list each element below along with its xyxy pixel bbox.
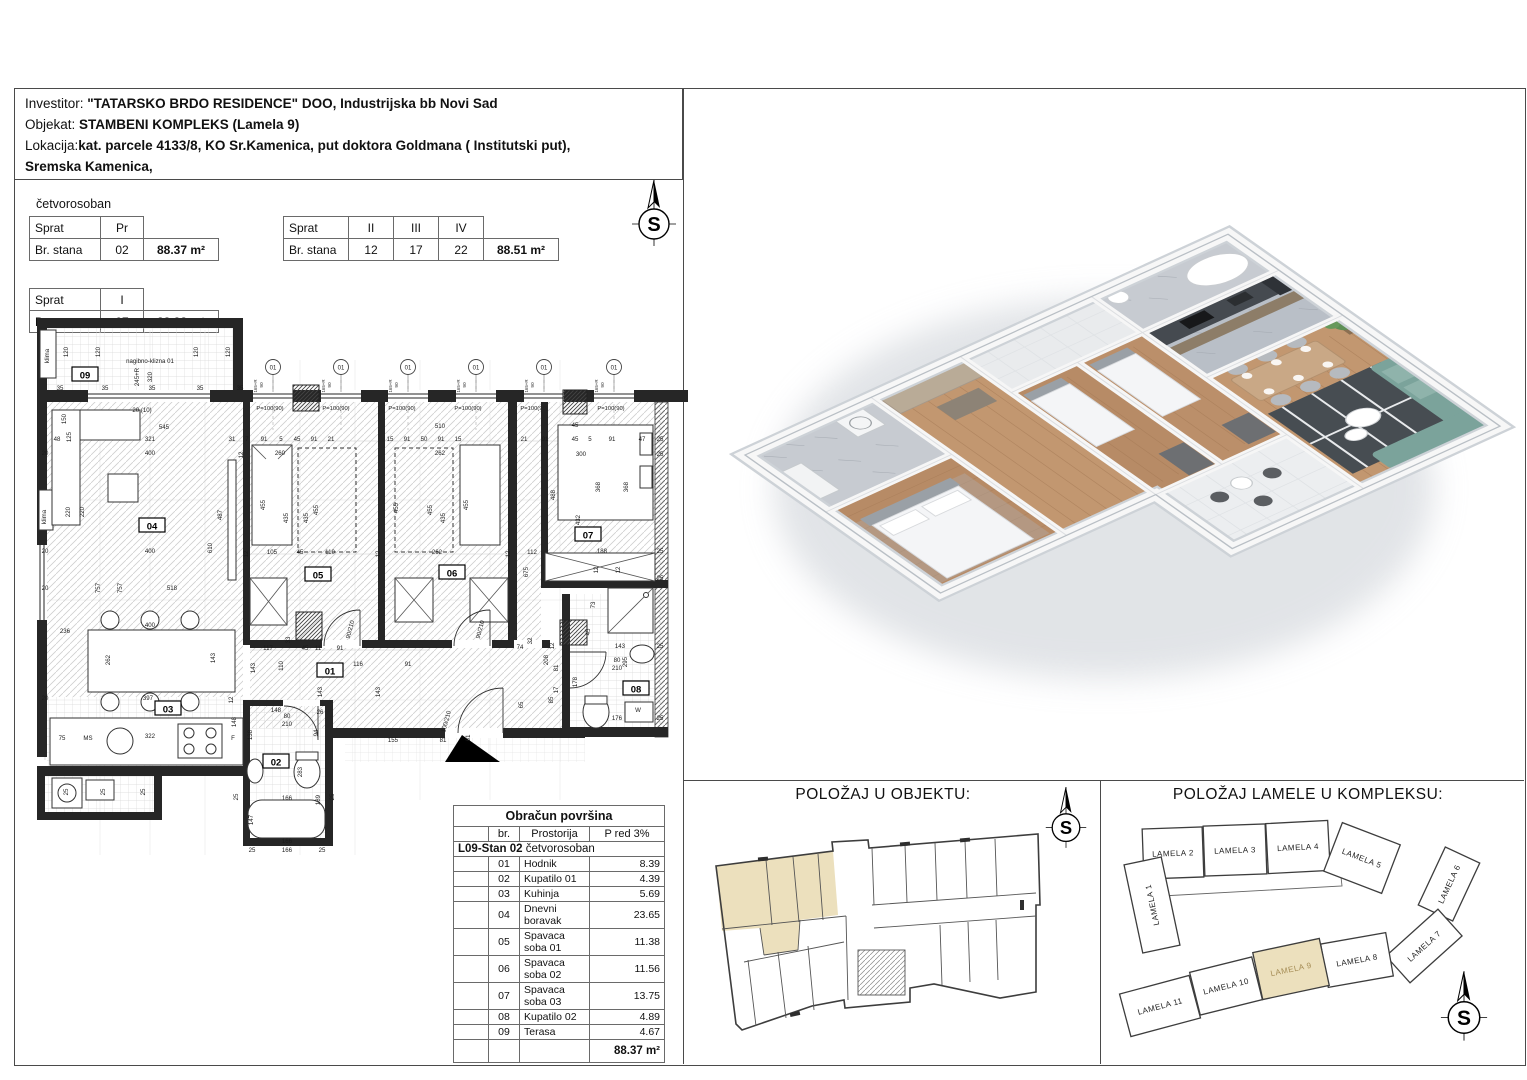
dim-label: 488 — [550, 489, 557, 500]
dim-label: 73 — [590, 601, 597, 608]
floor-plan-drawing: 0190165+R0190165+R0190165+R0190165+R0190… — [14, 300, 704, 875]
dim-label: 155 — [388, 737, 399, 744]
axis-marker-label: 01 — [270, 366, 277, 372]
unit-type-label: četvorosoban — [36, 197, 111, 211]
dim-label: 368 — [623, 481, 630, 492]
dim-label: 48 — [54, 436, 61, 443]
dim-label: 675 — [523, 566, 530, 577]
dim-label: 400 — [145, 622, 156, 629]
dim-label: F — [231, 735, 235, 742]
dim-label: 32 — [527, 637, 534, 644]
room-badge-label: 03 — [163, 705, 174, 716]
dim-label: 120 — [193, 346, 200, 357]
dim-label: 25 — [100, 788, 107, 795]
axis-sub-label: 165+R — [253, 379, 258, 392]
dim-label: 125 — [66, 431, 73, 442]
axis-sub-label: 165+R — [456, 379, 461, 392]
dim-label: 455 — [427, 504, 434, 515]
room-badge-label: 02 — [271, 758, 282, 769]
dim-label: 26 — [317, 709, 324, 716]
dim-label: 148 — [231, 716, 238, 727]
dim-label: 80 — [284, 713, 291, 720]
dim-label: 166 — [282, 838, 293, 845]
axis-sub-label: 90 — [327, 382, 333, 388]
dim-label: 455 — [393, 502, 400, 513]
lamela-block: LAMELA 5 — [1324, 823, 1401, 894]
parapet-label: P=100(90) — [388, 406, 415, 412]
dim-label: 178 — [572, 676, 579, 687]
dim-label: 120 — [225, 346, 232, 357]
dim-label: 21 — [328, 436, 335, 443]
dim-label: 150 — [61, 413, 68, 424]
dim-label: nagibno-klizna 01 — [126, 358, 174, 365]
dim-label: 120 — [95, 346, 102, 357]
svg-text:S: S — [1060, 817, 1072, 838]
dim-label: 12 — [615, 566, 622, 573]
dim-label: 400 — [145, 548, 156, 555]
room-badge-label: 05 — [313, 571, 324, 582]
dim-label: 322 — [145, 733, 156, 740]
dim-label: 25 — [657, 643, 664, 650]
dim-label: 110 — [325, 549, 335, 556]
svg-text:S: S — [1457, 1007, 1471, 1030]
room-badge-label: 06 — [447, 569, 458, 580]
lamela-block: LAMELA 10 — [1190, 957, 1263, 1015]
section-row: L09-Stan 02 četvorosoban — [454, 842, 665, 857]
dim-label: 12 — [228, 696, 235, 703]
dim-label: 166 — [282, 847, 293, 854]
dim-label: 25 — [329, 793, 336, 800]
dim-label: 262 — [105, 654, 112, 665]
dim-label: 45 — [302, 645, 309, 652]
dim-label: 35 — [57, 385, 64, 392]
dim-label: 50 — [421, 436, 428, 443]
dim-label: 147 — [248, 814, 255, 825]
area-table-row: 07Spavaca soba 0313.75 — [454, 983, 665, 1010]
dim-label: 12 — [505, 550, 512, 557]
dim-label: 112 — [527, 549, 537, 556]
dim-label: 35 — [237, 385, 244, 392]
axis-sub-label: 165+R — [524, 379, 529, 392]
dim-label: 25 — [657, 548, 664, 555]
dim-label: 35 — [197, 385, 204, 392]
dim-label: 45 — [572, 422, 579, 429]
parapet-label: P=100(90) — [520, 406, 547, 412]
dim-label: 166 — [282, 795, 293, 802]
axis-sub-label: 90 — [600, 382, 606, 388]
dim-label: 321 — [145, 436, 156, 443]
dim-label: 35 — [102, 385, 109, 392]
highlighted-apartment — [716, 851, 838, 955]
area-total: 88.37 m² — [590, 1040, 665, 1063]
dim-label: 220 — [65, 506, 72, 517]
dim-label: 300 — [576, 451, 587, 458]
stairwell — [858, 950, 905, 995]
dim-label: 236 — [60, 628, 71, 635]
dim-label: 65 — [518, 701, 525, 708]
dim-label: 74 — [517, 644, 524, 651]
axis-marker-label: 01 — [611, 366, 618, 372]
dim-label: 262 — [432, 549, 443, 556]
dim-label: 15 — [455, 436, 462, 443]
axis-marker-label: 01 — [338, 366, 345, 372]
axis-sub-label: 165+R — [388, 379, 393, 392]
dim-label: 25 — [657, 436, 664, 443]
dim-label: 45 — [572, 436, 579, 443]
dim-label: 81 — [440, 737, 447, 744]
dim-label: klima — [41, 509, 48, 524]
north-compass-icon: S — [628, 180, 680, 260]
dim-label: 455 — [313, 504, 320, 515]
area-table-title: Obračun površina — [454, 806, 665, 827]
parapet-label: P=100(90) — [597, 406, 624, 412]
lamela-block: LAMELA 3 — [1203, 824, 1267, 876]
dim-label: 25 — [233, 793, 240, 800]
dim-label: 368 — [595, 481, 602, 492]
lamela-label: LAMELA 3 — [1214, 845, 1256, 855]
svg-text:S: S — [647, 214, 660, 236]
col-br: br. — [489, 827, 520, 842]
room-badge-label: 07 — [583, 531, 594, 542]
floor-table-ground: SpratPr Br. stana0288.37 m² — [29, 216, 219, 261]
dim-label: 757 — [117, 582, 124, 593]
dim-label: 143 — [375, 686, 382, 697]
apartment-3d-render — [684, 89, 1524, 780]
dim-label: 15 — [387, 436, 394, 443]
dim-label: 91 — [261, 436, 268, 443]
dim-label: 397 — [143, 695, 154, 702]
dim-label: 283 — [297, 766, 304, 777]
dim-label: 20 — [42, 585, 49, 592]
dim-label: 110 — [278, 661, 285, 671]
room-badge-label: 09 — [80, 371, 91, 382]
area-calculation-table: Obračun površina br. Prostorija P red 3%… — [453, 805, 665, 1063]
location-line-2: Sremska Kamenica, — [25, 156, 672, 177]
dim-label: 220 — [79, 506, 86, 517]
dim-label: 31 — [229, 436, 236, 443]
lamela-block: LAMELA 8 — [1321, 933, 1394, 988]
dim-label: 17 — [553, 686, 560, 693]
dim-label: MS — [83, 735, 92, 742]
dim-label: 260 — [275, 450, 286, 457]
dim-label: klima — [44, 348, 51, 363]
dim-label: 116 — [353, 661, 363, 668]
parapet-label: P=100(90) — [322, 406, 349, 412]
dim-label: 295 — [622, 656, 629, 667]
axis-sub-label: 165+R — [594, 379, 599, 392]
dim-label: 188 — [597, 548, 608, 555]
dim-label: 91 — [311, 436, 318, 443]
dim-label: 487 — [217, 509, 224, 520]
dim-label: 105 — [267, 549, 278, 556]
area-table-row: 05Spavaca soba 0111.38 — [454, 929, 665, 956]
title-block: Investitor: "TATARSKO BRDO RESIDENCE" DO… — [14, 88, 683, 180]
dim-label: 45 — [294, 436, 301, 443]
panel-divider-horizontal — [683, 780, 1524, 781]
dim-label: 25 — [319, 847, 326, 854]
dim-label: 11 — [315, 645, 322, 652]
dim-label: 143 — [250, 662, 257, 673]
dim-label: 435 — [440, 512, 447, 523]
building-key-plan — [684, 800, 1099, 1062]
axis-sub-label: 90 — [462, 382, 468, 388]
dim-label: 75 — [59, 735, 66, 742]
dim-label: 91 — [404, 436, 411, 443]
location-line: Lokacija:kat. parcele 4133/8, KO Sr.Kame… — [25, 135, 672, 156]
dim-label: 20 — [42, 450, 49, 457]
lamela-block: LAMELA 6 — [1418, 847, 1479, 921]
dim-label: 91 — [405, 661, 412, 668]
dim-label: 143 — [615, 643, 626, 650]
dim-label: 12 — [549, 642, 556, 649]
dim-label: 545 — [159, 424, 170, 431]
lamela-block: LAMELA 11 — [1120, 975, 1201, 1036]
axis-sub-label: 90 — [530, 382, 536, 388]
dim-label: 21 — [521, 436, 528, 443]
dim-label: 120 — [63, 346, 70, 357]
dim-label: 25 — [657, 575, 664, 582]
dim-label: 432 — [575, 514, 582, 525]
area-table-row: 02Kupatilo 014.39 — [454, 872, 665, 887]
dim-label: 245+R — [134, 367, 141, 386]
col-p: P red 3% — [590, 827, 665, 842]
dim-label: 25 — [657, 715, 664, 722]
investor-line: Investitor: "TATARSKO BRDO RESIDENCE" DO… — [25, 93, 672, 114]
dim-label: 12 — [375, 550, 382, 557]
dim-label: 208 — [543, 654, 550, 665]
dim-label: 455 — [463, 499, 470, 510]
dim-label: 143 — [210, 652, 217, 663]
area-table-row: 03Kuhinja5.69 — [454, 887, 665, 902]
dim-label: 138 — [247, 729, 254, 740]
dim-label: 435 — [303, 512, 310, 523]
north-compass-icon: S — [1436, 970, 1492, 1056]
dim-label: 20 (10) — [132, 407, 151, 414]
dim-label: 25 — [140, 788, 147, 795]
dim-label: 143 — [317, 686, 324, 697]
area-table-row: 06Spavaca soba 0211.56 — [454, 956, 665, 983]
dim-label: 12 — [238, 451, 245, 458]
object-line: Objekat: STAMBENI KOMPLEKS (Lamela 9) — [25, 114, 672, 135]
dim-label: 189 — [315, 794, 322, 805]
col-room: Prostorija — [520, 827, 590, 842]
dim-label: 176 — [612, 715, 623, 722]
dim-label: 25 — [63, 788, 70, 795]
dim-label: 20 — [42, 695, 49, 702]
dim-label: 510 — [435, 423, 446, 430]
axis-marker-label: 01 — [541, 366, 548, 372]
dim-label: 91 — [542, 436, 549, 443]
dim-label: 91 — [337, 645, 344, 652]
dim-label: 91 — [609, 436, 616, 443]
dim-label: 45 — [297, 549, 304, 556]
dim-label: 610 — [207, 542, 214, 553]
axis-marker-label: 01 — [405, 366, 412, 372]
room-badge-label: 01 — [325, 667, 336, 678]
dim-label: 45 — [585, 628, 592, 635]
dim-label: 47 — [639, 436, 646, 443]
dim-label: 25 — [249, 847, 256, 854]
dim-label: 400 — [145, 450, 156, 457]
axis-sub-label: 90 — [259, 382, 265, 388]
dim-label: 35 — [149, 385, 156, 392]
dim-label: 12 — [593, 566, 600, 573]
dim-label: 94 — [313, 729, 320, 736]
dim-label: 33 — [285, 636, 292, 643]
parapet-label: P=100(90) — [454, 406, 481, 412]
dim-label: 455 — [260, 499, 267, 510]
dim-label: 518 — [167, 585, 178, 592]
dim-label: 91 — [438, 436, 445, 443]
dim-label: 12 — [243, 550, 250, 557]
north-compass-icon: S — [1040, 786, 1092, 866]
axis-marker-label: 01 — [473, 366, 480, 372]
dim-label: 80 — [614, 657, 621, 664]
dim-label: 262 — [435, 450, 446, 457]
dim-label: W — [635, 707, 641, 714]
dim-label: 320 — [147, 371, 154, 382]
axis-sub-label: 90 — [394, 382, 400, 388]
dim-label: 148 — [271, 707, 282, 714]
area-table-row: 01Hodnik8.39 — [454, 857, 665, 872]
dim-label: 61 — [465, 734, 472, 741]
dim-label: 85 — [548, 696, 555, 703]
parapet-label: P=100(90) — [256, 406, 283, 412]
dim-label: 81 — [553, 664, 560, 671]
dim-label: 117 — [263, 645, 273, 652]
lamela-block: LAMELA 9 — [1253, 938, 1329, 999]
area-table-row: 04Dnevni boravak23.65 — [454, 902, 665, 929]
dim-label: 20 — [42, 548, 49, 555]
dim-label: 757 — [95, 582, 102, 593]
dim-label: 210 — [282, 721, 293, 728]
floor-table-upper: SpratIIIIIIV Br. stana12172288.51 m² — [283, 216, 559, 261]
room-badge-label: 08 — [631, 685, 642, 696]
dim-label: 435 — [283, 512, 290, 523]
axis-sub-label: 165+R — [321, 379, 326, 392]
dim-label: 25 — [657, 451, 664, 458]
lamela-block: LAMELA 4 — [1266, 820, 1331, 873]
area-table-row: 09Terasa4.67 — [454, 1025, 665, 1040]
area-table-row: 08Kupatilo 024.89 — [454, 1010, 665, 1025]
room-badge-label: 04 — [147, 522, 158, 533]
